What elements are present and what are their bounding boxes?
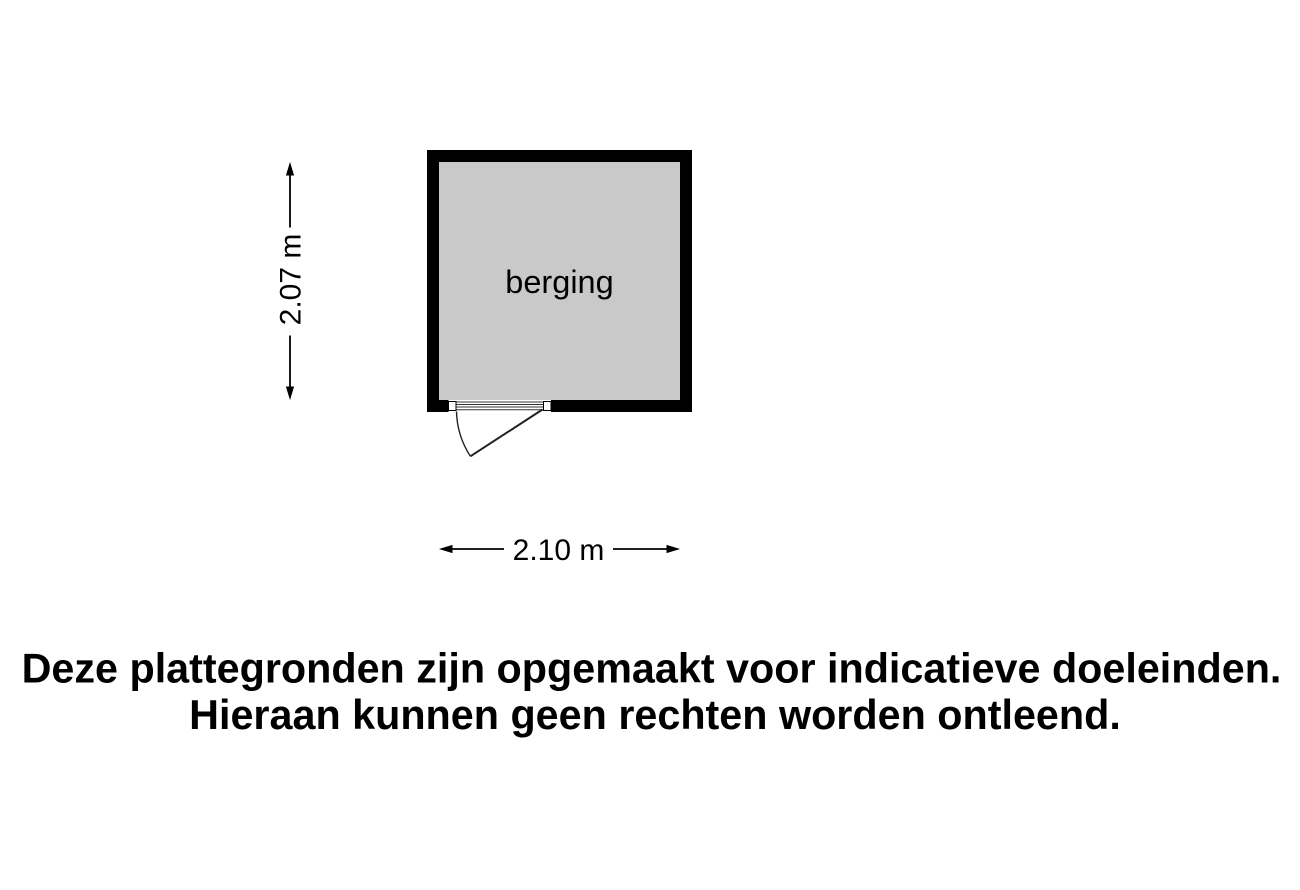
- svg-text:berging: berging: [505, 264, 613, 300]
- svg-text:2.10 m: 2.10 m: [513, 534, 605, 567]
- svg-text:Hieraan kunnen geen rechten wo: Hieraan kunnen geen rechten worden ontle…: [189, 692, 1121, 738]
- svg-text:2.07 m: 2.07 m: [275, 234, 308, 326]
- svg-text:Deze plattegronden zijn opgema: Deze plattegronden zijn opgemaakt voor i…: [22, 646, 1282, 692]
